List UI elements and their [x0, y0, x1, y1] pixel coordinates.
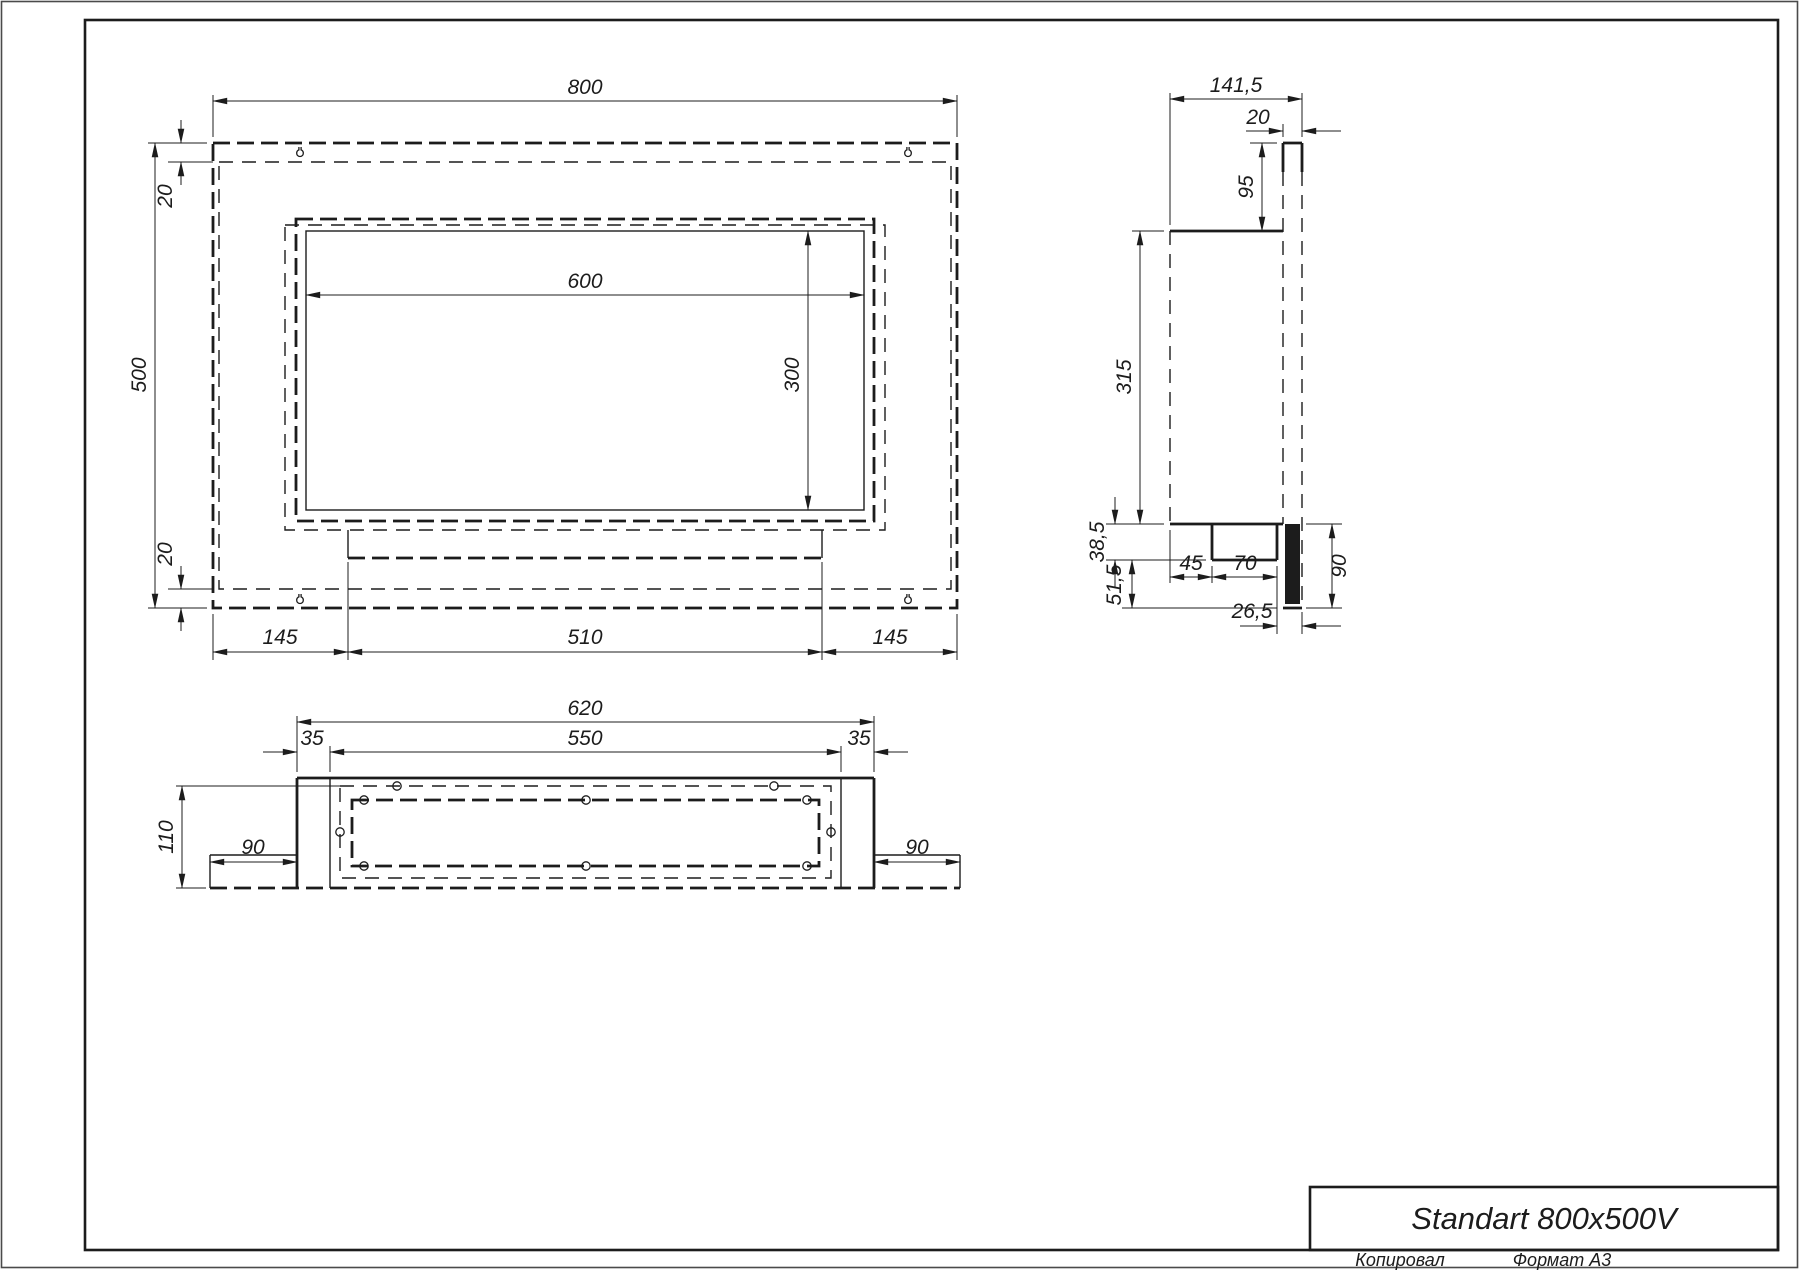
dim-tray-offset: 45 — [1179, 552, 1203, 575]
dim-tray-height: 38,5 — [1086, 521, 1109, 562]
bottom-view: 620 550 35 35 110 90 90 — [155, 697, 960, 888]
dim-bottom-center: 510 — [567, 626, 602, 649]
dim-opening-width: 600 — [567, 270, 602, 293]
panel-section-fill — [1285, 524, 1300, 604]
dim-box-width: 620 — [567, 697, 602, 720]
dim-box-margin-left: 35 — [300, 727, 324, 750]
technical-drawing: 800 500 20 20 600 300 145 510 145 — [0, 0, 1800, 1273]
dim-bottom-right: 145 — [872, 626, 907, 649]
dim-front-offset-bottom: 20 — [154, 542, 177, 567]
dim-top-to-body: 95 — [1235, 175, 1258, 199]
dim-tray-width: 70 — [1233, 552, 1257, 575]
front-view: 800 500 20 20 600 300 145 510 145 — [128, 76, 957, 660]
dim-box-margin-right: 35 — [847, 727, 871, 750]
dim-panel-thickness: 20 — [1245, 106, 1270, 129]
dim-wing-right: 90 — [905, 836, 929, 859]
mounting-keyhole-icon — [905, 147, 912, 157]
front-inner-offset — [219, 162, 951, 589]
dim-opening-height: 300 — [781, 357, 804, 392]
title-block: Standart 800x500V Копировал Формат А3 — [1310, 1187, 1778, 1270]
dim-box-depth: 110 — [155, 820, 178, 854]
dim-bottom-section: 90 — [1328, 554, 1351, 578]
footer-copied-label: Копировал — [1355, 1250, 1445, 1270]
dim-front-offset-top: 20 — [154, 184, 177, 209]
dim-wing-left: 90 — [241, 836, 265, 859]
dim-box-opening: 550 — [567, 727, 602, 750]
tray-hidden-inner — [352, 800, 819, 866]
footer-format-label: Формат А3 — [1513, 1250, 1612, 1270]
mounting-keyhole-icon — [905, 594, 912, 604]
side-view: 141,5 20 95 315 38,5 51,5 45 70 — [1086, 74, 1351, 634]
screw-hole — [770, 782, 778, 790]
drawing-frame — [85, 20, 1778, 1250]
dim-front-height: 500 — [128, 357, 151, 392]
mounting-keyhole-icon — [297, 147, 304, 157]
mounting-keyhole-icon — [297, 594, 304, 604]
dim-front-width: 800 — [567, 76, 602, 99]
front-outer-panel — [213, 143, 957, 608]
dim-body-height: 315 — [1113, 359, 1136, 394]
drawing-title: Standart 800x500V — [1411, 1201, 1680, 1236]
dim-lower-height: 51,5 — [1103, 564, 1126, 605]
dim-bottom-left: 145 — [262, 626, 297, 649]
dim-tray-to-edge: 26,5 — [1231, 600, 1273, 623]
dim-side-depth: 141,5 — [1210, 74, 1263, 97]
